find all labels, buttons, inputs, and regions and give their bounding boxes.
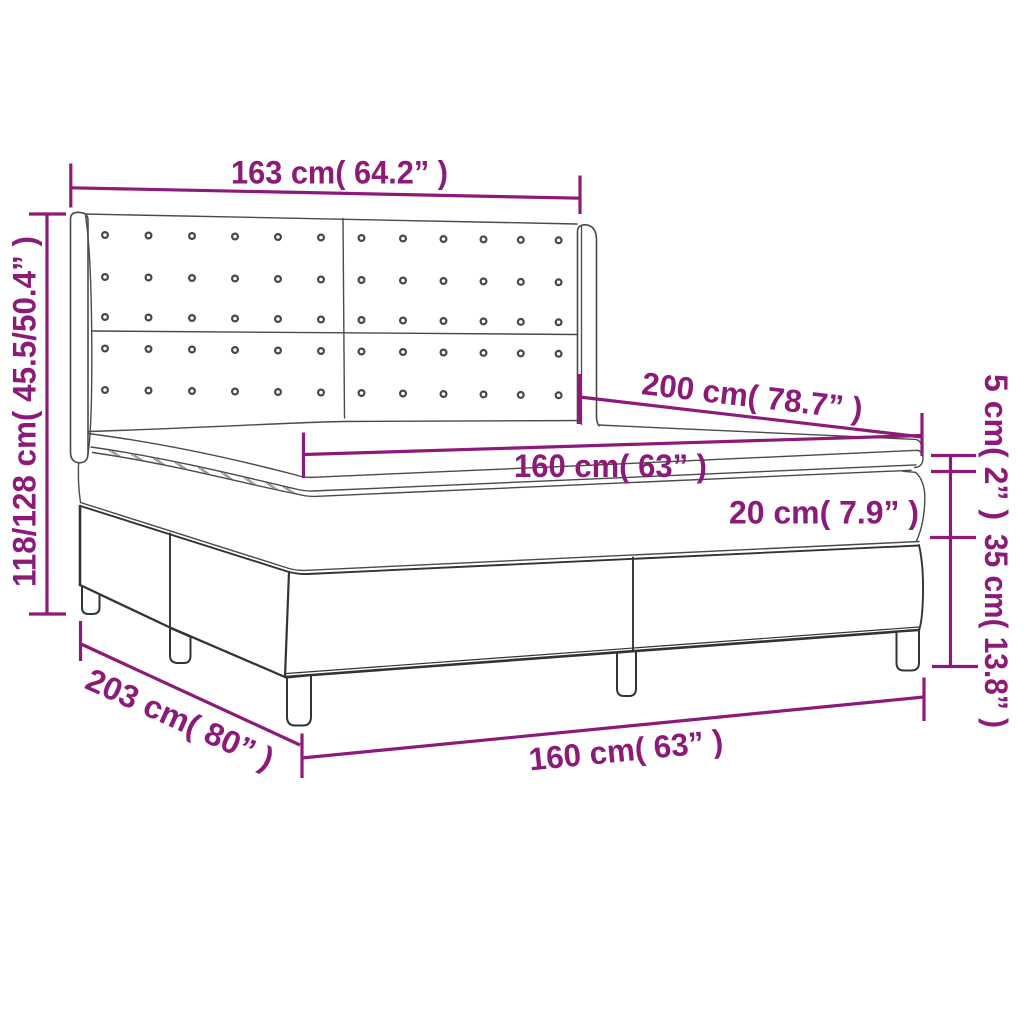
svg-text:20 cm( 7.9” ): 20 cm( 7.9” ): [729, 495, 919, 531]
svg-text:160 cm( 63” ): 160 cm( 63” ): [514, 448, 707, 484]
svg-text:35 cm( 13.8” ): 35 cm( 13.8” ): [978, 534, 1014, 728]
svg-text:5 cm( 2” ): 5 cm( 2” ): [978, 374, 1014, 520]
svg-text:163 cm( 64.2” ): 163 cm( 64.2” ): [231, 155, 448, 191]
svg-text:118/128 cm( 45.5/50.4” ): 118/128 cm( 45.5/50.4” ): [7, 236, 43, 587]
